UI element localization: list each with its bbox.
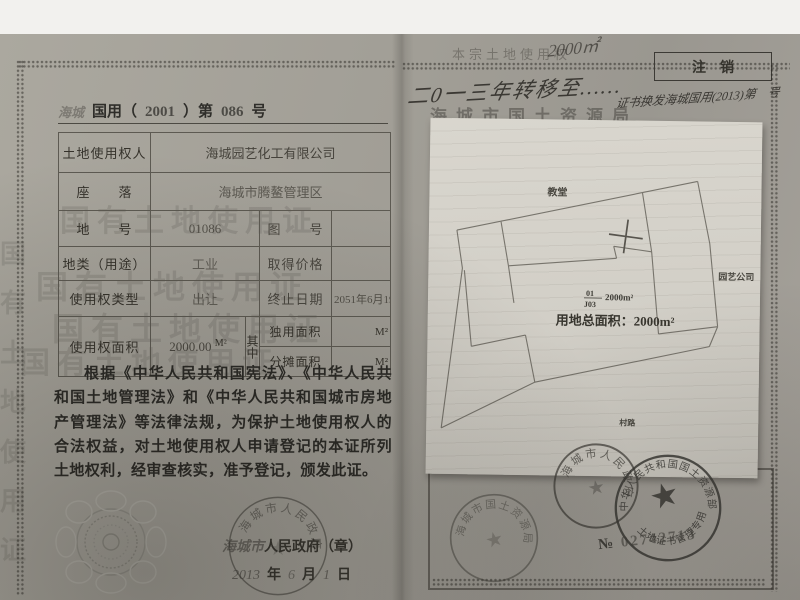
table-row: 土地使用权人 海城园艺化工有限公司 — [59, 133, 391, 173]
end-date-value: 2051年6月19日 — [332, 281, 391, 317]
location-value: 海城市腾鳌管理区 — [151, 173, 391, 211]
issuer-line: 海城市人民政府（章） — [222, 536, 402, 556]
region-handwritten: 海城 — [58, 102, 84, 121]
cert-title-part1: 国用（ — [92, 100, 137, 121]
cert-title-part2: ）第 — [183, 100, 213, 121]
right-type-value: 出让 — [151, 281, 260, 317]
table-row: 地类（用途） 工业 取得价格 — [59, 247, 391, 281]
star-icon: ★ — [646, 475, 684, 518]
sheet-no-value — [332, 211, 391, 247]
issuer-printed: 人民政府（章） — [264, 540, 362, 555]
sheet-no: J03 — [584, 300, 596, 309]
issuer-region-stamped: 海城市 — [222, 540, 264, 555]
certificate-photo: 国有土地使用证 国有土地使用证 国有土地使用证 国有土地使用证 国有土地使用证 … — [0, 0, 800, 600]
serial-prefix: № — [597, 535, 616, 553]
parcel-no: 01 — [586, 289, 594, 298]
issue-month-value: 6 — [288, 568, 295, 584]
total-area-text: 用地总面积：2000m² — [555, 312, 675, 329]
map-label-horticulture-company: 园艺公司 — [718, 271, 754, 283]
land-use-value: 工业 — [151, 247, 260, 281]
parcel-map-drawing: 教堂 园艺公司 村路 01 J03 2000m² 用地总面积：2000m² — [426, 118, 763, 479]
parcel-map-overlay: 教堂 园艺公司 村路 01 J03 2000m² 用地总面积：2000m² — [426, 118, 763, 479]
parcel-no-value: 01086 — [151, 211, 260, 247]
legal-paragraph: 根据《中华人民共和国宪法》、《中华人民共和国土地管理法》和《中华人民共和国城市房… — [54, 362, 392, 483]
price-value — [332, 247, 391, 281]
table-row: 座 落 海城市腾鳌管理区 — [59, 173, 391, 211]
table-row: 地 号 01086 图 号 — [59, 211, 391, 247]
embossed-seal — [44, 490, 178, 594]
area-unit: M² — [215, 338, 227, 349]
price-label: 取得价格 — [260, 247, 332, 281]
issue-day-char: 日 — [337, 564, 351, 584]
cert-year: 2001 — [145, 104, 175, 121]
border-chain-left-edge — [16, 60, 25, 596]
issue-month-char: 月 — [302, 564, 316, 584]
holder-label: 土地使用权人 — [59, 133, 151, 173]
end-date-label: 终止日期 — [260, 281, 332, 317]
land-use-label: 地类（用途） — [59, 247, 151, 281]
cancellation-label: 注 销 — [692, 57, 734, 77]
sheet-no-label: 图 号 — [260, 211, 332, 247]
border-chain-top-left-page — [18, 60, 396, 69]
certificate-number-line: 海城 国用（ 2001 ）第 086 号 — [58, 97, 388, 124]
map-label-village-road: 村路 — [619, 417, 636, 427]
parcel-no-label: 地 号 — [59, 211, 151, 247]
star-icon: ★ — [483, 527, 506, 553]
parcel-number-fraction: 01 J03 2000m² — [584, 289, 634, 310]
issue-year-value: 2013 — [232, 568, 260, 584]
cert-suffix: 号 — [252, 100, 267, 121]
area-number: 2000.00 — [169, 339, 211, 354]
land-info-table: 土地使用权人 海城园艺化工有限公司 座 落 海城市腾鳌管理区 地 号 01086… — [58, 132, 390, 356]
cancellation-box: 注 销 — [654, 52, 772, 81]
table-row: 使用权面积 2000.00 M² 其中 独用面积 M² — [59, 317, 391, 347]
exclusive-area-unit: M² — [332, 317, 391, 347]
location-label: 座 落 — [59, 173, 151, 211]
issue-year-char: 年 — [267, 564, 281, 584]
exclusive-area-label: 独用面积 — [260, 317, 332, 347]
issue-day-value: 1 — [323, 568, 330, 584]
cert-number: 086 — [221, 104, 244, 121]
table-row: 使用权类型 出让 终止日期 2051年6月19日 — [59, 281, 391, 317]
map-label-church: 教堂 — [546, 185, 567, 198]
parcel-area: 2000m² — [605, 292, 634, 302]
holder-value: 海城园艺化工有限公司 — [151, 133, 391, 173]
right-type-label: 使用权类型 — [59, 281, 151, 317]
issue-date-line: 2013 年 6 月 1 日 — [232, 564, 402, 584]
